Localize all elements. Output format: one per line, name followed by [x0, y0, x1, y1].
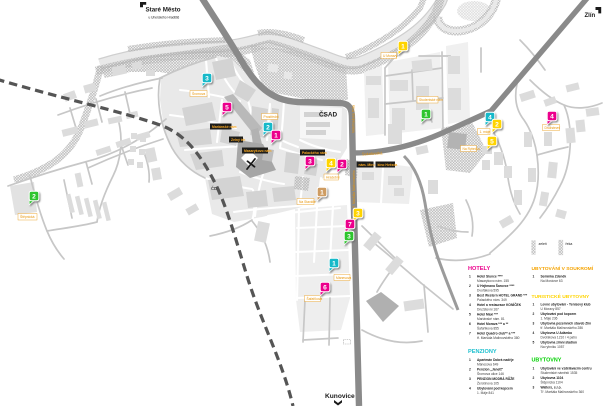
svg-text:Na rybníku 1057: Na rybníku 1057: [541, 345, 565, 349]
svg-text:Šromova ulice 146: Šromova ulice 146: [477, 371, 504, 376]
svg-text:Zlín: Zlín: [585, 13, 596, 19]
svg-text:1: 1: [469, 274, 471, 278]
svg-text:Kunovice: Kunovice: [325, 393, 355, 400]
svg-text:ČSAD: ČSAD: [319, 110, 337, 119]
svg-text:2: 2: [266, 124, 270, 131]
svg-text:Mánesova: Mánesova: [336, 276, 351, 280]
svg-text:Ubytování pod kopcem: Ubytování pod kopcem: [541, 312, 577, 316]
svg-text:2: 2: [533, 312, 535, 316]
svg-text:u Uherského Hradiště: u Uherského Hradiště: [149, 16, 180, 20]
svg-text:4: 4: [533, 331, 535, 335]
svg-text:Na Morávce 63: Na Morávce 63: [541, 279, 563, 283]
svg-text:Ubytovna U Adámka: Ubytovna U Adámka: [541, 331, 573, 335]
svg-text:Mariánské nám: Mariánské nám: [212, 125, 237, 129]
svg-text:tř. Maršála Malinovského: tř. Maršála Malinovského: [352, 170, 356, 208]
svg-text:U Moravy: U Moravy: [383, 54, 397, 58]
svg-text:Studentské náměstí 1535: Studentské náměstí 1535: [541, 371, 578, 375]
svg-text:2: 2: [340, 161, 344, 168]
svg-text:Ubytovna pozemních staveb Zlín: Ubytovna pozemních staveb Zlín: [541, 322, 592, 326]
svg-text:Walters, s.r.o.: Walters, s.r.o.: [541, 385, 562, 389]
svg-text:3: 3: [356, 210, 360, 217]
svg-text:Penzion „Janett“: Penzion „Janett“: [477, 367, 504, 371]
svg-text:Hotel Quadro club** a ***: Hotel Quadro club** a ***: [477, 331, 516, 335]
svg-text:Palackého nám. 349: Palackého nám. 349: [477, 298, 507, 302]
svg-text:4: 4: [329, 160, 333, 167]
svg-text:Hotel Morava *** a **: Hotel Morava *** a **: [477, 322, 509, 326]
svg-text:1: 1: [332, 260, 336, 267]
svg-text:kino Hvězda: kino Hvězda: [378, 163, 398, 167]
svg-text:Dvořákova 1210 / 4 patro: Dvořákova 1210 / 4 patro: [541, 336, 578, 340]
svg-text:Ubytovna 1104: Ubytovna 1104: [541, 376, 564, 380]
svg-text:2: 2: [469, 284, 471, 288]
svg-text:řeka: řeka: [566, 242, 573, 246]
svg-text:U Moravy 857: U Moravy 857: [541, 307, 561, 311]
svg-text:1: 1: [533, 366, 535, 370]
svg-text:1. Máje 841: 1. Máje 841: [477, 391, 494, 395]
svg-text:Prostřední: Prostřední: [264, 115, 279, 119]
svg-text:Hotel Maxi ***: Hotel Maxi ***: [477, 312, 499, 316]
svg-text:7: 7: [469, 331, 471, 335]
svg-text:1: 1: [533, 274, 535, 278]
svg-text:Ubytování pod kopcem: Ubytování pod kopcem: [477, 386, 513, 390]
svg-text:2: 2: [495, 121, 499, 128]
svg-text:Ubytovna zimní stadion: Ubytovna zimní stadion: [541, 341, 577, 345]
svg-text:1: 1: [274, 132, 278, 139]
svg-text:Palackého nám: Palackého nám: [302, 151, 327, 155]
svg-text:3: 3: [469, 377, 471, 381]
svg-text:5: 5: [533, 341, 535, 345]
svg-text:4: 4: [469, 386, 471, 390]
svg-text:2: 2: [469, 367, 471, 371]
svg-text:U Hejtmana Šarovce ****: U Hejtmana Šarovce ****: [477, 283, 515, 288]
svg-text:1. máje: 1. máje: [480, 130, 491, 134]
svg-text:tř. Maršála Malinovského 380: tř. Maršála Malinovského 380: [477, 336, 520, 340]
svg-text:3: 3: [347, 233, 351, 240]
svg-text:Šromova: Šromova: [192, 91, 205, 96]
svg-text:Masarykovo nám: Masarykovo nám: [244, 149, 272, 153]
svg-text:1: 1: [469, 358, 471, 362]
svg-text:5: 5: [490, 138, 494, 145]
svg-text:Štěpnická: Štěpnická: [20, 214, 35, 219]
svg-text:Studentské nám: Studentské nám: [419, 98, 443, 102]
svg-text:Hotel Slunce ****: Hotel Slunce ****: [477, 274, 503, 278]
svg-text:Mariánské nám. 81: Mariánské nám. 81: [477, 317, 505, 321]
svg-text:Dvořákova 595: Dvořákova 595: [477, 289, 499, 293]
svg-text:Štěpnická 1104: Štěpnická 1104: [541, 380, 563, 385]
svg-text:Družstevní 167: Družstevní 167: [477, 308, 499, 312]
svg-text:HOTELY: HOTELY: [468, 266, 490, 272]
svg-text:1: 1: [401, 43, 405, 50]
svg-text:3: 3: [205, 75, 209, 82]
svg-text:PENZIONY: PENZIONY: [468, 349, 497, 355]
svg-text:1: 1: [424, 111, 428, 118]
svg-text:PENZION MODRÁ RŮŽE: PENZION MODRÁ RŮŽE: [477, 376, 515, 381]
svg-text:5: 5: [469, 312, 471, 316]
svg-text:2: 2: [533, 376, 535, 380]
svg-text:Šafaříkova: Šafaříkova: [307, 296, 323, 301]
svg-text:Velehradská třída: Velehradská třída: [352, 105, 356, 133]
svg-text:4: 4: [469, 303, 471, 307]
svg-text:Mánesova 649: Mánesova 649: [477, 363, 499, 367]
svg-text:3: 3: [308, 158, 312, 165]
svg-text:6: 6: [469, 322, 471, 326]
svg-text:UBYTOVNY: UBYTOVNY: [532, 358, 562, 364]
svg-text:1: 1: [320, 189, 324, 196]
svg-text:Na Rybníku: Na Rybníku: [463, 147, 480, 151]
svg-text:1: 1: [533, 303, 535, 307]
svg-text:Družstevní: Družstevní: [545, 126, 561, 130]
svg-text:Žerotínova 105: Žerotínova 105: [477, 381, 499, 386]
svg-text:1. Máje 236: 1. Máje 236: [541, 317, 558, 321]
svg-text:Hradební: Hradební: [326, 176, 340, 180]
svg-text:4: 4: [488, 114, 492, 121]
svg-text:3: 3: [469, 293, 471, 297]
svg-text:Hotel a restaurace KONÍČEK: Hotel a restaurace KONÍČEK: [477, 302, 522, 307]
svg-text:3: 3: [533, 322, 535, 326]
svg-text:Na Stavidle: Na Stavidle: [299, 200, 316, 204]
svg-text:2: 2: [32, 193, 36, 200]
svg-text:Masarykovo nám. 155: Masarykovo nám. 155: [477, 279, 509, 283]
svg-text:Zelný trh: Zelný trh: [231, 138, 245, 142]
svg-text:nám. Míru: nám. Míru: [359, 163, 375, 167]
svg-text:tř. Maršála Malinovského 286: tř. Maršála Malinovského 286: [541, 326, 584, 330]
svg-text:5: 5: [225, 104, 229, 111]
svg-text:Šafaříkova 855: Šafaříkova 855: [477, 326, 499, 331]
svg-text:Levné ubytování - Tenisový klu: Levné ubytování - Tenisový klub: [541, 303, 591, 307]
svg-text:7: 7: [348, 221, 352, 228]
svg-text:Apartmán Dobrá naděje: Apartmán Dobrá naděje: [477, 358, 514, 362]
svg-text:6: 6: [323, 284, 327, 291]
svg-text:3: 3: [533, 385, 535, 389]
svg-text:Tř. Maršála Malinovského 360: Tř. Maršála Malinovského 360: [541, 390, 585, 394]
svg-text:zeleň: zeleň: [539, 242, 547, 246]
svg-text:Semínka Zdeněk: Semínka Zdeněk: [541, 274, 567, 278]
svg-text:Best Western HOTEL GRAND ***: Best Western HOTEL GRAND ***: [477, 293, 528, 297]
svg-text:Staré Město: Staré Město: [146, 6, 181, 13]
svg-text:4: 4: [550, 113, 554, 120]
svg-text:ČD: ČD: [211, 186, 217, 191]
svg-text:Ubytování ve vzdělávacím centr: Ubytování ve vzdělávacím centru: [541, 366, 592, 370]
